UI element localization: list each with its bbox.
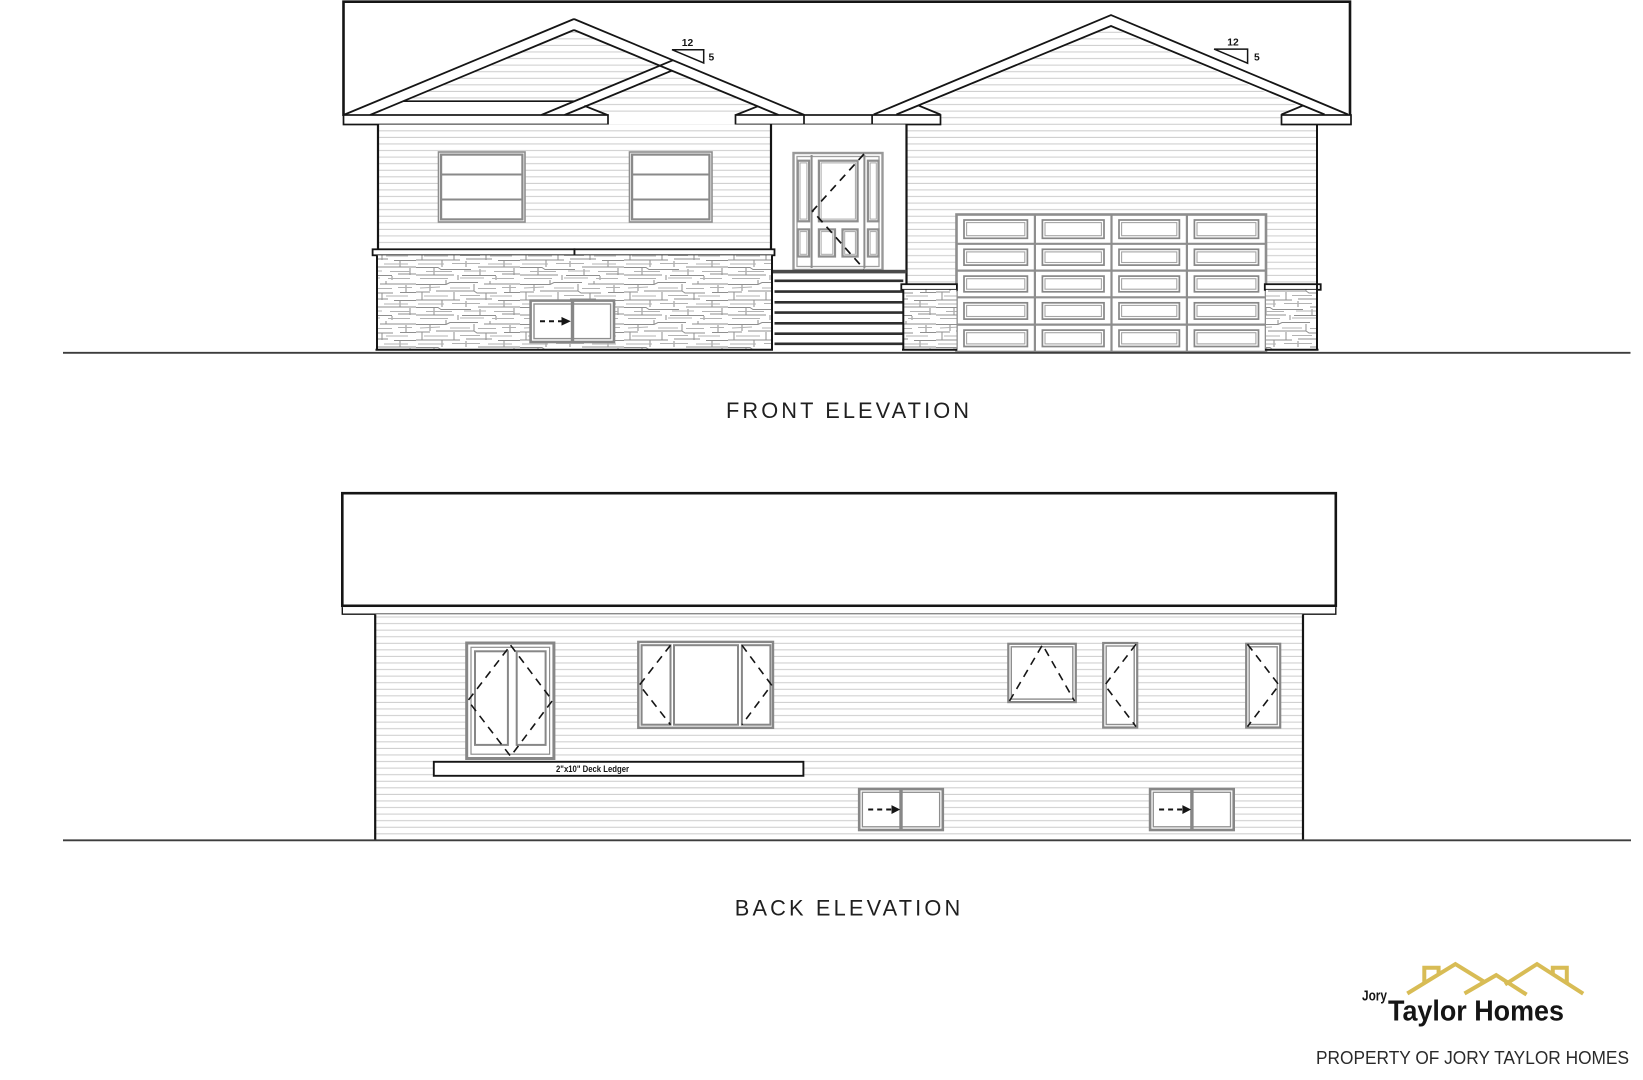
svg-text:BACK ELEVATION: BACK ELEVATION [735,896,961,921]
svg-text:Taylor Homes: Taylor Homes [1388,996,1564,1028]
svg-text:FRONT ELEVATION: FRONT ELEVATION [726,398,969,423]
svg-text:Jory: Jory [1362,989,1387,1005]
svg-text:2"x10" Deck Ledger: 2"x10" Deck Ledger [556,764,629,774]
svg-text:12: 12 [1227,38,1239,49]
svg-text:5: 5 [1254,53,1260,64]
svg-text:PROPERTY OF JORY TAYLOR HOMES: PROPERTY OF JORY TAYLOR HOMES [1316,1048,1629,1068]
svg-text:12: 12 [682,38,694,49]
svg-text:5: 5 [709,53,715,64]
